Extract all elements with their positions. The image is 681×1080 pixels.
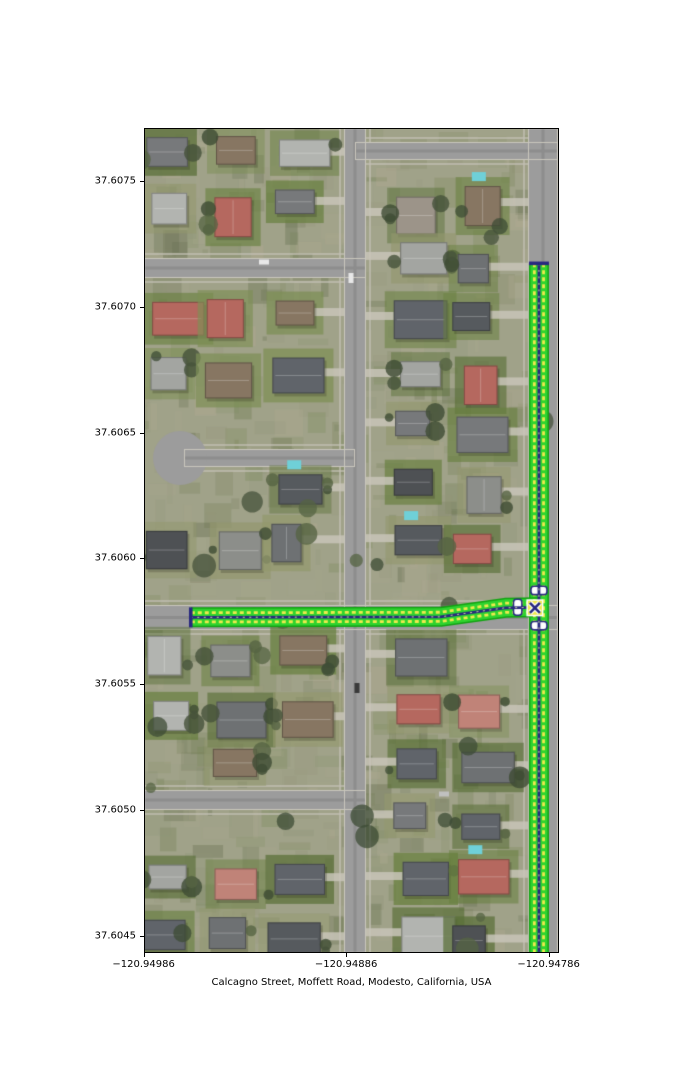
figure: Calcagno Street, Moffett Road, Modesto, … — [0, 0, 681, 1080]
x-axis-title: Calcagno Street, Moffett Road, Modesto, … — [144, 977, 559, 988]
y-tick-label: 37.6065 — [6, 427, 136, 438]
x-tick-mark — [346, 953, 347, 957]
y-tick-label: 37.6075 — [6, 176, 136, 187]
y-tick-mark — [140, 433, 144, 434]
x-tick-label: −120.94886 — [315, 959, 377, 970]
y-tick-label: 37.6045 — [6, 930, 136, 941]
x-tick-label: −120.94786 — [517, 959, 579, 970]
y-tick-mark — [140, 810, 144, 811]
y-tick-mark — [140, 936, 144, 937]
x-tick-label: −120.94986 — [112, 959, 174, 970]
y-tick-mark — [140, 181, 144, 182]
y-tick-label: 37.6070 — [6, 301, 136, 312]
y-tick-label: 37.6055 — [6, 679, 136, 690]
x-tick-mark — [144, 953, 145, 957]
y-tick-label: 37.6050 — [6, 805, 136, 816]
aerial-basemap-street-overlay-canvas — [144, 128, 559, 953]
y-tick-mark — [140, 558, 144, 559]
y-tick-mark — [140, 307, 144, 308]
y-tick-label: 37.6060 — [6, 553, 136, 564]
y-tick-mark — [140, 684, 144, 685]
x-tick-mark — [549, 953, 550, 957]
